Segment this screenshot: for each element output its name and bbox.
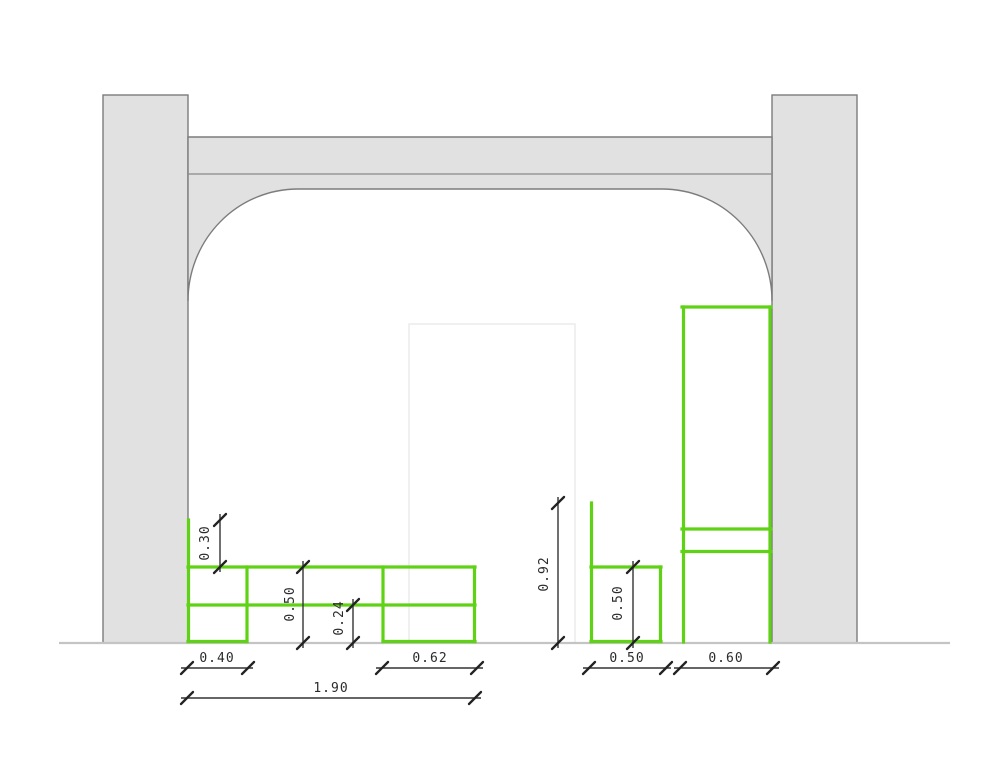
dim-label-right-module: 0.62 xyxy=(412,651,447,666)
dim-label-tall-unit-width: 0.60 xyxy=(708,651,743,666)
left-pillar xyxy=(103,95,188,643)
dim-label-side-panel: 0.92 xyxy=(537,556,552,591)
dim-label-counter-total: 1.90 xyxy=(313,681,348,696)
dimension-lines xyxy=(181,497,779,698)
niche-outline xyxy=(409,324,575,643)
right-pillar xyxy=(772,95,857,643)
dim-label-plinth: 0.24 xyxy=(332,600,347,635)
dim-label-small-unit-height: 0.50 xyxy=(611,585,626,620)
dim-label-counter-height: 0.50 xyxy=(283,586,298,621)
furniture xyxy=(188,307,771,642)
dim-label-small-unit-width: 0.50 xyxy=(609,651,644,666)
elevation-svg: 0.30 0.50 0.24 0.92 0.50 0.40 0.62 0.50 … xyxy=(0,0,1000,780)
masonry xyxy=(103,95,857,643)
elevation-drawing: 0.30 0.50 0.24 0.92 0.50 0.40 0.62 0.50 … xyxy=(0,0,1000,780)
dim-label-left-module: 0.40 xyxy=(199,651,234,666)
tall-unit xyxy=(682,307,771,642)
dim-label-backsplash: 0.30 xyxy=(198,525,213,560)
small-unit xyxy=(591,503,661,642)
beam-arch-spandrel xyxy=(188,137,772,301)
